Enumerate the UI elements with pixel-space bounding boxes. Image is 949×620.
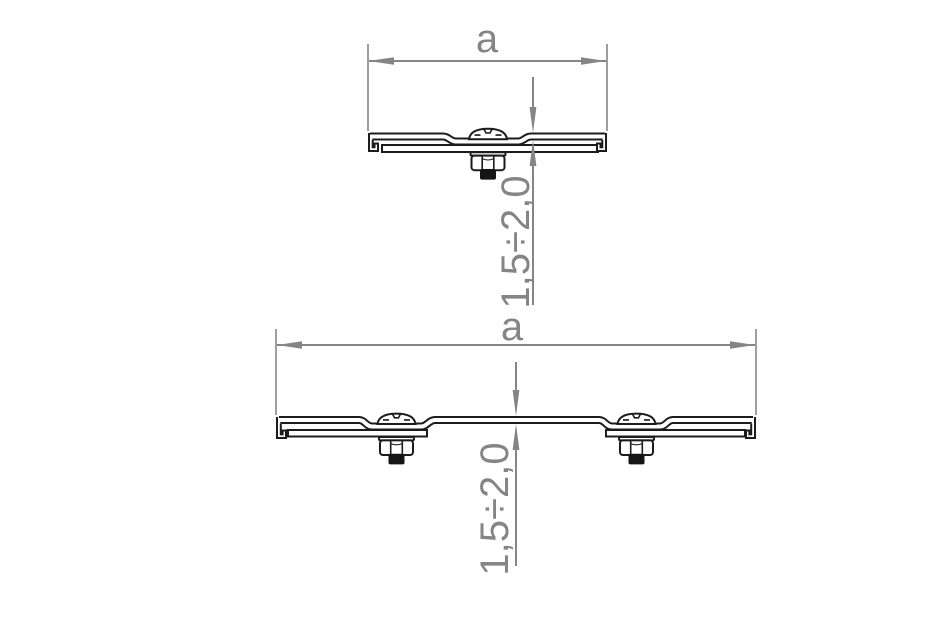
thickness-arrow-down [530, 107, 537, 133]
arrowhead-right [581, 57, 606, 65]
technical-drawing-canvas: a 1,5÷2,0 a [0, 0, 949, 620]
insert-bar-left [288, 430, 427, 437]
thickness-arrow-down [513, 390, 520, 416]
top-profile [369, 129, 606, 180]
insert-bar [382, 145, 598, 152]
arrowhead-right [730, 341, 755, 349]
bolt-assembly [469, 129, 507, 180]
bottom-width-label: a [501, 305, 524, 349]
arrowhead-left [369, 57, 394, 65]
insert-bar-right [606, 430, 745, 437]
top-thickness-dimension: 1,5÷2,0 [494, 77, 538, 309]
bolt-assembly-right [618, 414, 656, 465]
bottom-view: a 1,5÷2,0 [276, 305, 756, 576]
top-width-dimension: a [368, 17, 607, 131]
arrowhead-left [277, 341, 302, 349]
drawing-svg: a 1,5÷2,0 a [0, 0, 949, 620]
top-width-label: a [476, 17, 499, 61]
bottom-thickness-dimension: 1,5÷2,0 [473, 362, 519, 576]
top-view: a 1,5÷2,0 [368, 17, 607, 309]
bottom-thickness-label: 1,5÷2,0 [473, 442, 517, 575]
top-thickness-label: 1,5÷2,0 [494, 175, 538, 308]
bolt-assembly-left [378, 414, 416, 465]
